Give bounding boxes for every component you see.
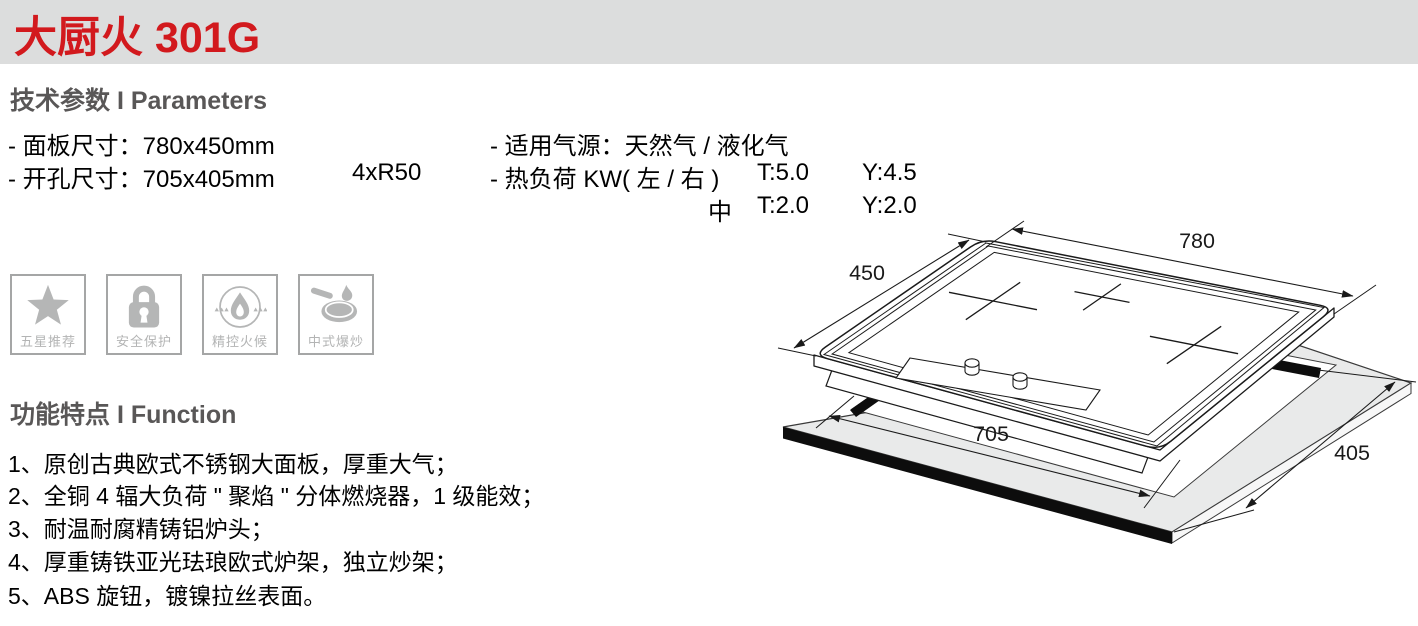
function-item-4: 4、厚重铸铁亚光珐琅欧式炉架，独立炒架； (8, 543, 458, 577)
lock-icon (117, 280, 171, 334)
param-lr-y: Y:4.5 (862, 159, 917, 187)
badge-label: 精控火候 (204, 331, 276, 350)
param-panel-size: - 面板尺寸：780x450mm (8, 126, 275, 161)
flame-icon (213, 280, 267, 334)
function-item-2: 2、全铜 4 辐大负荷 " 聚焰 " 分体燃烧器，1 级能效； (8, 477, 544, 511)
star-icon (21, 280, 75, 334)
param-corner-radius: 4xR50 (352, 159, 421, 187)
dim-panel-depth: 450 (849, 261, 885, 285)
badge-five-star: 五星推荐 (10, 274, 86, 355)
function-item-5: 5、ABS 旋钮，镀镍拉丝表面。 (8, 577, 326, 611)
product-title: 大厨火 301G (14, 3, 260, 65)
dim-cutout-depth: 405 (1334, 441, 1370, 465)
badge-label: 中式爆炒 (300, 331, 372, 350)
function-item-1: 1、原创古典欧式不锈钢大面板，厚重大气； (8, 445, 458, 479)
installation-diagram: 780 450 705 405 (770, 210, 1418, 570)
knob (1013, 373, 1027, 389)
param-gas-source: - 适用气源：天然气 / 液化气 (490, 126, 789, 161)
param-lr-t: T:5.0 (757, 159, 809, 187)
wok-icon (309, 280, 363, 334)
dim-cutout-width: 705 (973, 422, 1009, 446)
badge-safety: 安全保护 (106, 274, 182, 355)
function-item-3: 3、耐温耐腐精铸铝炉头； (8, 510, 274, 544)
badge-label: 安全保护 (108, 331, 180, 350)
parameters-heading: 技术参数 I Parameters (10, 81, 267, 117)
badge-fire-control: 精控火候 (202, 274, 278, 355)
knob (965, 359, 979, 375)
badge-label: 五星推荐 (12, 331, 84, 350)
badge-stir-fry: 中式爆炒 (298, 274, 374, 355)
param-heat-load: - 热负荷 KW( 左 / 右 ) (490, 159, 719, 194)
function-heading: 功能特点 I Function (10, 395, 236, 431)
spec-sheet-page: 大厨火 301G 技术参数 I Parameters - 面板尺寸：780x45… (0, 0, 1418, 626)
param-cutout-size: - 开孔尺寸：705x405mm (8, 159, 275, 194)
dim-panel-width: 780 (1179, 229, 1215, 253)
param-mid-label: 中 (708, 192, 732, 227)
